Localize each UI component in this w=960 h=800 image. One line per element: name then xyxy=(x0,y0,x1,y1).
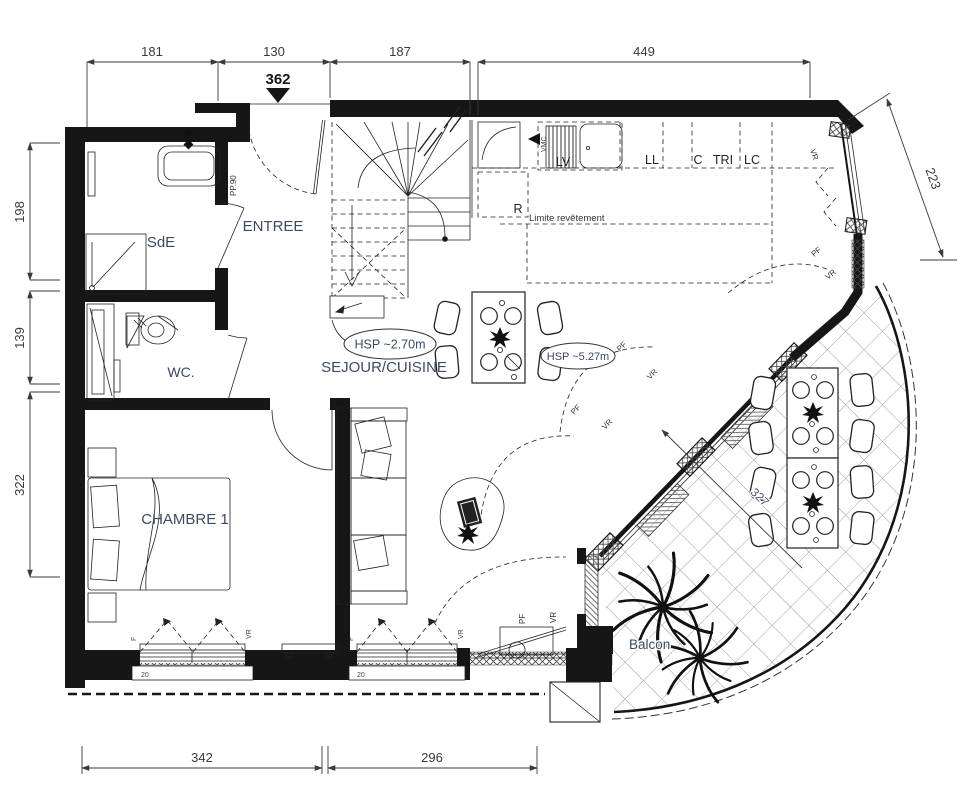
fridge-label: R xyxy=(513,202,522,216)
shutter-label: VR xyxy=(549,612,558,623)
interior-walls xyxy=(85,142,350,652)
dim-top-4: 449 xyxy=(633,44,655,59)
dishwasher-label: LV xyxy=(556,155,571,169)
level-marker-icon xyxy=(266,88,290,103)
room-label-entree: ENTREE xyxy=(243,218,304,235)
shutter-label: VR xyxy=(808,148,820,162)
kitchen: VMC LV R LL C TRI LC Limite revêtement xyxy=(472,120,836,283)
dim-top-1: 181 xyxy=(141,44,163,59)
dim-left-3: 322 xyxy=(12,474,27,496)
dim-right: 223 xyxy=(922,166,944,192)
room-label-sde: SdE xyxy=(147,234,175,251)
shutter-label: VR xyxy=(458,629,465,639)
shutter-label: VR xyxy=(824,267,838,281)
french-door-label: PF xyxy=(810,245,824,259)
dim-bottom-1: 342 xyxy=(191,750,213,765)
vmc-label: VMC xyxy=(541,136,548,152)
shutter-label: VR xyxy=(600,417,614,431)
dim-bottom-2: 296 xyxy=(421,750,443,765)
sill-size-label: 20 xyxy=(357,672,365,679)
room-label-sejour: SEJOUR/CUISINE xyxy=(321,359,447,376)
french-door-label: PF xyxy=(569,403,583,417)
bedroom-furniture xyxy=(88,448,338,657)
entry-level-value: 362 xyxy=(265,71,290,88)
room-label-balcon: Balcon xyxy=(629,637,670,652)
tri-label: TRI xyxy=(713,153,733,167)
french-door-label: PF xyxy=(518,614,527,624)
shutter-label: VR xyxy=(645,367,659,381)
cupboard-label: C xyxy=(693,153,702,167)
dim-top-2: 130 xyxy=(263,44,285,59)
bathroom-fixtures xyxy=(86,129,220,400)
room-label-wc: WC. xyxy=(167,364,194,380)
ceiling-height-low: HSP ~2.70m xyxy=(355,338,426,352)
sill-size-label: 20 xyxy=(141,672,149,679)
dim-left-1: 198 xyxy=(12,201,27,223)
lc-label: LC xyxy=(744,153,760,167)
ceiling-height-high: HSP ~5.27m xyxy=(547,351,609,363)
window-opening-symbols xyxy=(140,620,457,652)
floor-plan-svg: 20 20 F VR F VR VR xyxy=(0,0,960,800)
floor-plan-page: 20 20 F VR F VR VR xyxy=(0,0,960,800)
flooring-limit-label: Limite revêtement xyxy=(529,213,605,224)
entry-door-label: PP.90 xyxy=(229,175,238,196)
room-label-chambre: CHAMBRE 1 xyxy=(141,511,229,528)
dim-left-2: 139 xyxy=(12,327,27,349)
shutter-label: VR xyxy=(246,629,253,639)
dim-top-3: 187 xyxy=(389,44,411,59)
washer-label: LL xyxy=(645,153,659,167)
doors: PP.90 xyxy=(218,120,566,657)
window-label: F xyxy=(131,637,138,641)
